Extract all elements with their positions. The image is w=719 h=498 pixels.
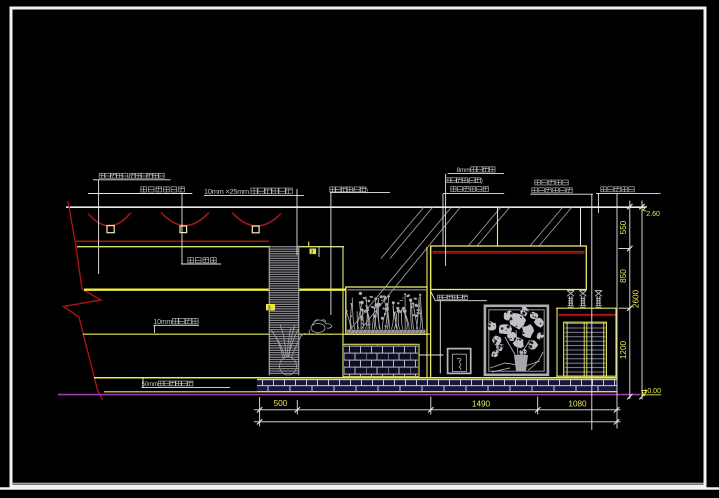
svg-text:2.60: 2.60 [646,211,660,218]
svg-text:1080: 1080 [568,399,587,408]
svg-text:±0.00: ±0.00 [644,388,662,395]
svg-text:50mm: 50mm [142,381,158,388]
svg-text:550: 550 [619,220,628,234]
svg-text:10mm: 10mm [154,319,173,326]
svg-text:2600: 2600 [632,289,641,308]
svg-text:3: 3 [268,306,271,312]
svg-text:3: 3 [311,249,314,255]
svg-text:(: ( [468,178,470,185]
svg-text:1200: 1200 [619,340,628,359]
svg-text:8mm: 8mm [457,167,472,174]
svg-text:10mm ×25mm: 10mm ×25mm [204,187,249,196]
svg-text:): ) [481,178,483,185]
svg-text:850: 850 [619,269,628,283]
svg-text:1490: 1490 [472,399,491,408]
svg-text:): ) [366,187,368,194]
svg-text:500: 500 [274,399,288,408]
